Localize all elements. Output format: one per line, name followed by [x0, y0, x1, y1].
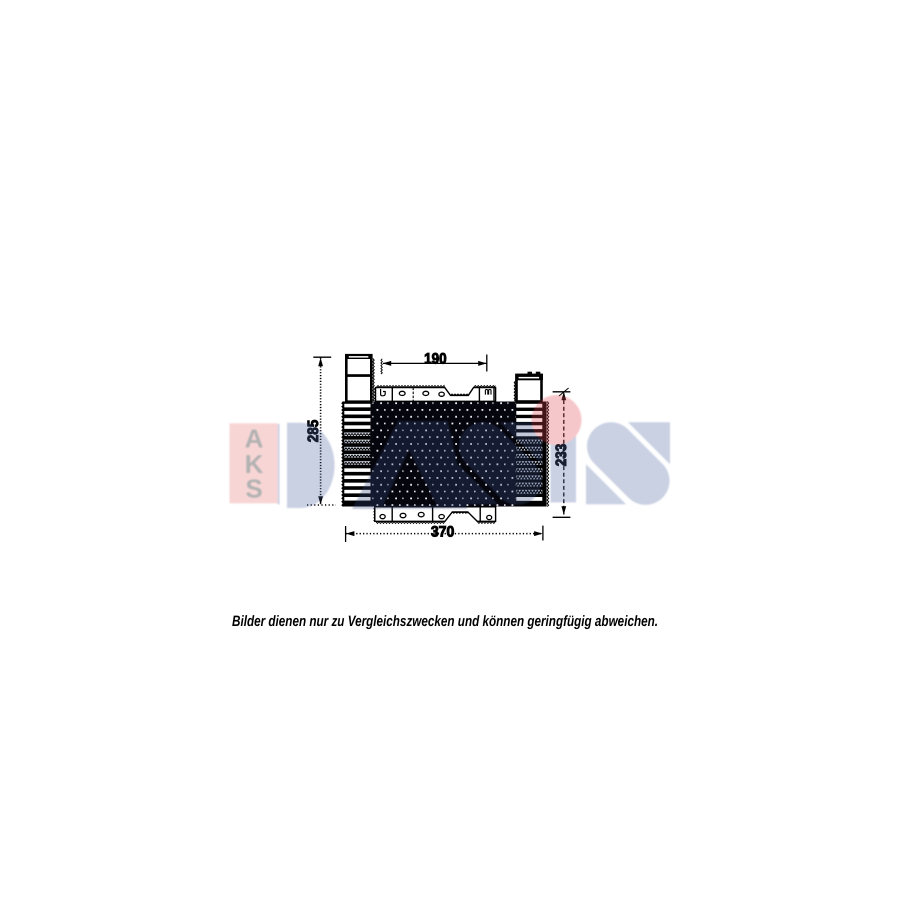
- svg-text:S: S: [245, 473, 262, 503]
- svg-text:370: 370: [431, 524, 455, 541]
- svg-text:Bilder dienen nur zu Vergleich: Bilder dienen nur zu Vergleichszwecken u…: [232, 613, 658, 630]
- svg-text:190: 190: [424, 351, 447, 368]
